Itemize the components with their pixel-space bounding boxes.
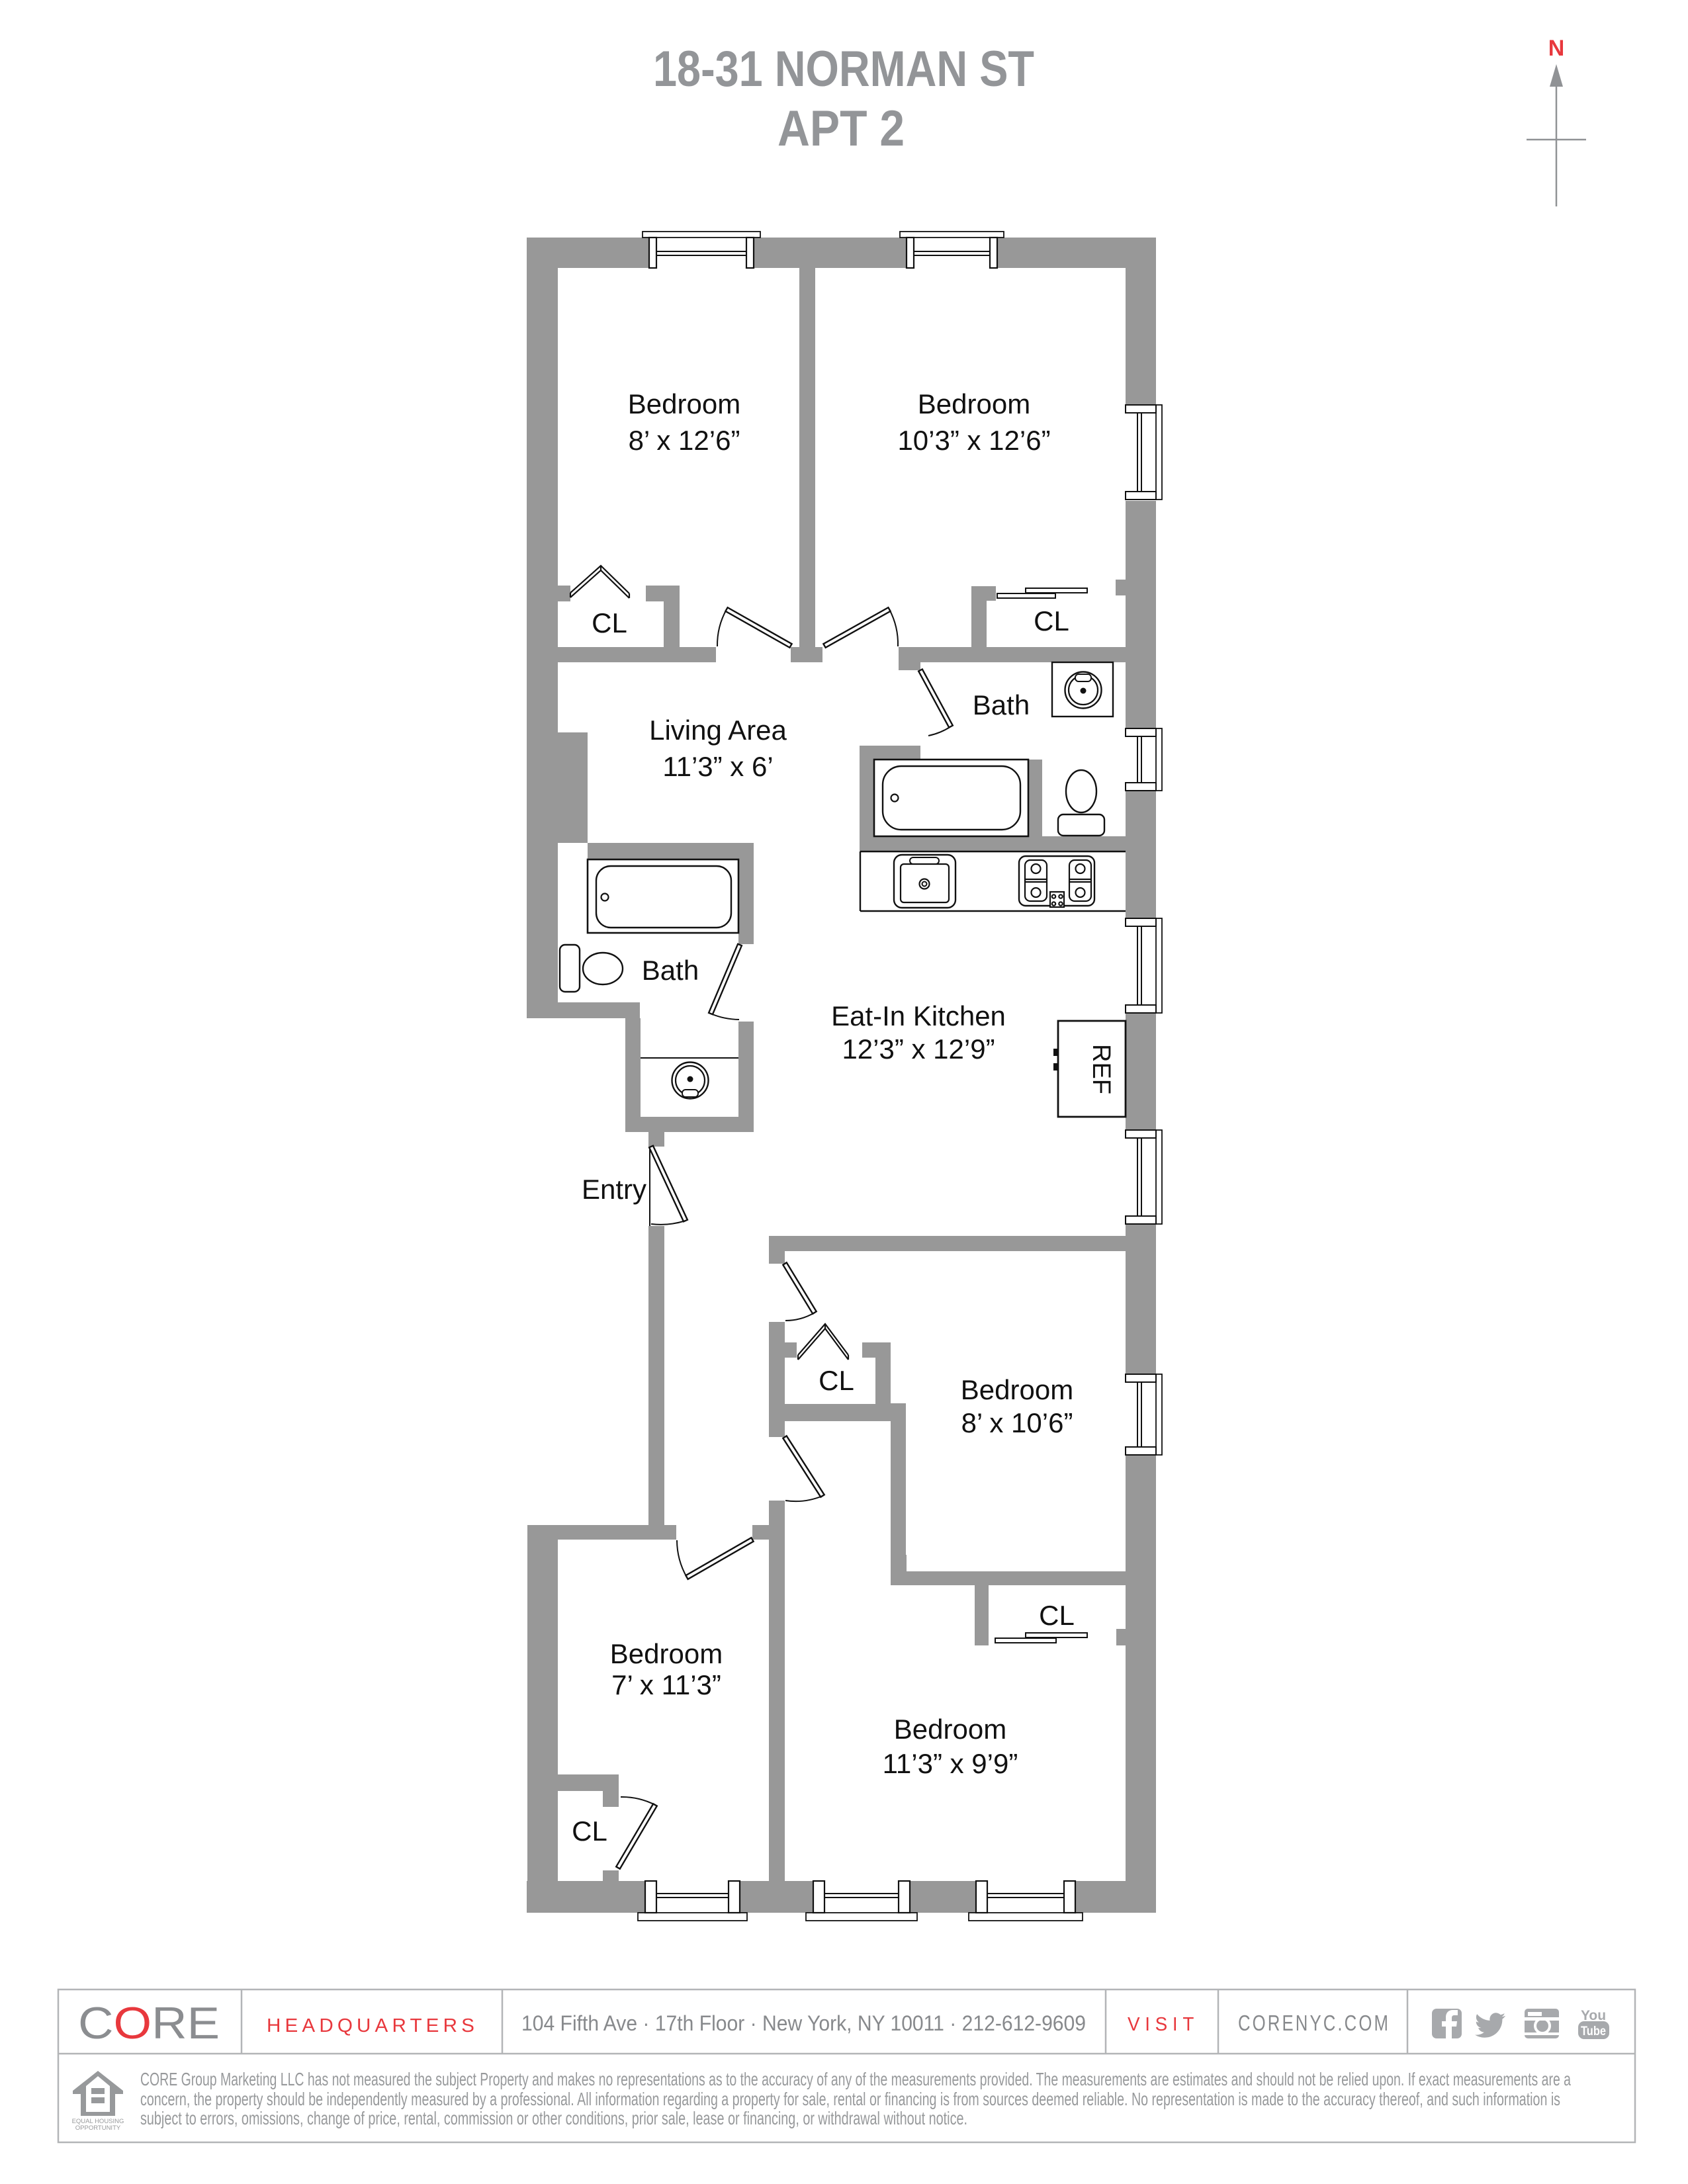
svg-text:You: You (1581, 2008, 1606, 2023)
svg-text:Bath: Bath (642, 955, 699, 986)
svg-text:CORENYC.COM: CORENYC.COM (1238, 2011, 1390, 2035)
svg-text:Tube: Tube (1581, 2025, 1606, 2038)
svg-text:HEADQUARTERS: HEADQUARTERS (267, 2015, 478, 2036)
svg-text:VISIT: VISIT (1128, 2014, 1199, 2035)
svg-text:CORE Group Marketing LLC has n: CORE Group Marketing LLC has not measure… (140, 2069, 1571, 2089)
svg-text:Bedroom: Bedroom (961, 1374, 1073, 1405)
svg-text:Bedroom: Bedroom (894, 1714, 1006, 1745)
svg-text:CL: CL (1039, 1600, 1075, 1631)
svg-text:CL: CL (572, 1815, 607, 1847)
svg-text:Eat-In Kitchen: Eat-In Kitchen (831, 1000, 1006, 1031)
svg-text:18-31 NORMAN ST: 18-31 NORMAN ST (653, 41, 1034, 97)
svg-text:11’3” x 6’: 11’3” x 6’ (662, 751, 773, 782)
svg-text:CL: CL (819, 1365, 854, 1396)
svg-text:Bedroom: Bedroom (610, 1638, 723, 1669)
svg-text:APT 2: APT 2 (777, 101, 905, 157)
svg-text:11’3” x 9’9”: 11’3” x 9’9” (883, 1748, 1018, 1779)
svg-text:Entry: Entry (582, 1174, 646, 1205)
svg-text:8’ x 12’6”: 8’ x 12’6” (629, 425, 740, 456)
svg-text:Bath: Bath (973, 689, 1030, 721)
svg-text:8’ x 10’6”: 8’ x 10’6” (961, 1407, 1073, 1438)
svg-text:N: N (1548, 36, 1565, 61)
svg-text:7’ x 11’3”: 7’ x 11’3” (611, 1669, 721, 1700)
svg-text:CL: CL (1034, 605, 1069, 636)
svg-text:concern, the property should b: concern, the property should be independ… (140, 2089, 1560, 2109)
svg-text:REF: REF (1087, 1044, 1115, 1094)
svg-text:CORE: CORE (78, 1998, 220, 2048)
svg-text:Living Area: Living Area (649, 715, 787, 746)
svg-text:OPPORTUNITY: OPPORTUNITY (75, 2124, 121, 2132)
svg-text:subject to errors, omissions,: subject to errors, omissions, change of … (140, 2108, 967, 2128)
svg-text:104 Fifth Ave · 17th Floor · N: 104 Fifth Ave · 17th Floor · New York, N… (521, 2011, 1086, 2035)
svg-text:12’3” x 12’9”: 12’3” x 12’9” (842, 1033, 995, 1065)
svg-text:10’3” x 12’6”: 10’3” x 12’6” (897, 425, 1050, 456)
svg-text:CL: CL (592, 607, 627, 638)
svg-text:Bedroom: Bedroom (918, 388, 1030, 419)
svg-text:Bedroom: Bedroom (628, 388, 740, 419)
